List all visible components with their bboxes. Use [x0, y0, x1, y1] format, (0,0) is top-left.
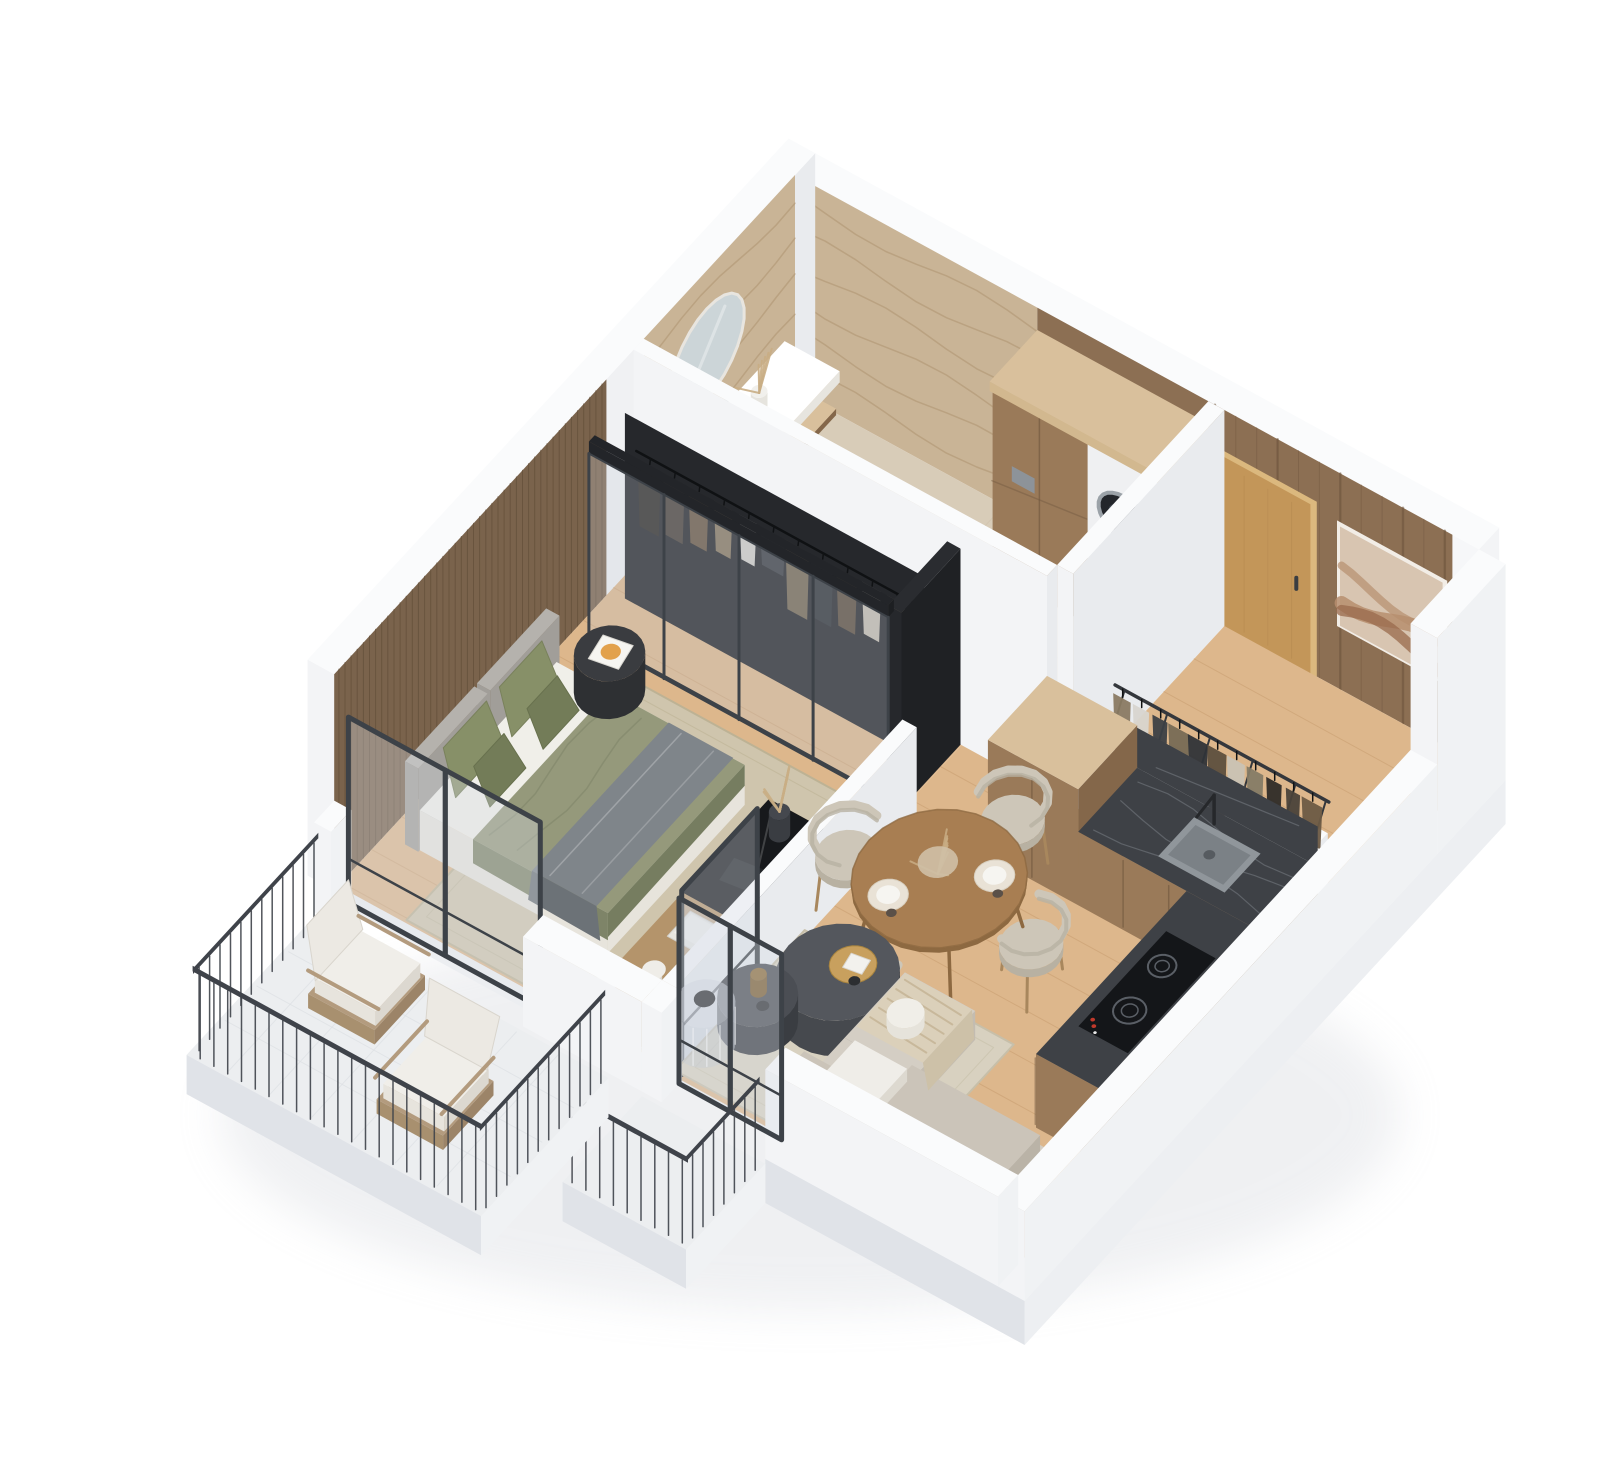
hanger — [699, 486, 700, 492]
floorplan-stage: 3D isometric floor plan render of a one-… — [0, 0, 1600, 1483]
hanger — [823, 553, 824, 559]
loggia-glass-door — [679, 898, 730, 1112]
hanger — [847, 567, 848, 573]
hanger — [798, 540, 799, 546]
hanger — [773, 526, 774, 532]
hanger — [724, 499, 725, 505]
hanger — [650, 459, 651, 465]
hanger — [675, 472, 676, 478]
apartment-render — [187, 139, 1506, 1345]
loggia-pier-face-b — [642, 1002, 662, 1103]
hanger — [749, 513, 750, 519]
bedside-table — [574, 625, 646, 719]
chair-leg — [1027, 975, 1028, 1012]
isometric-floorplan-svg — [0, 0, 1600, 1483]
hanger — [872, 581, 873, 587]
